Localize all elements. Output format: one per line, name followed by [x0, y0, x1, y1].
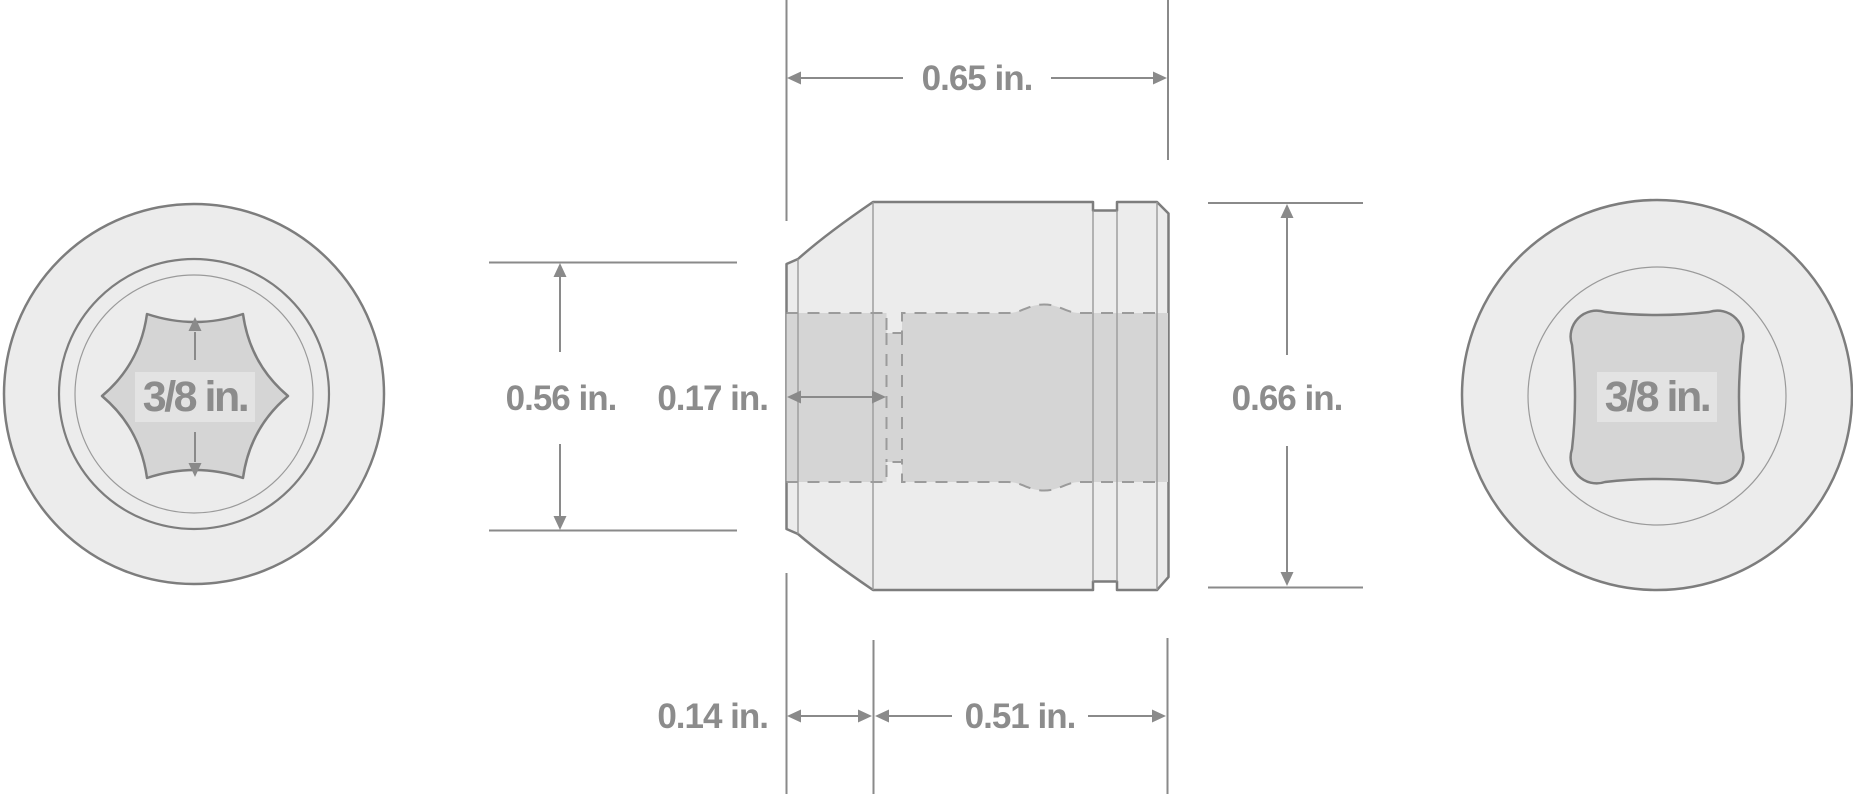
- dim-outer-diameter: 0.66 in.: [1208, 203, 1363, 588]
- front-opening-size-label: 3/8 in.: [143, 373, 247, 421]
- arrow-up-icon: [1281, 204, 1294, 218]
- arrow-up-icon: [554, 263, 567, 277]
- front-opening-diameter-label: 0.56 in.: [506, 379, 617, 418]
- dim-front-taper-length: 0.14 in.: [657, 573, 873, 794]
- drive-size-label: 3/8 in.: [1605, 373, 1709, 421]
- front-taper-length-label: 0.14 in.: [657, 697, 768, 736]
- arrow-down-icon: [1281, 572, 1294, 586]
- arrow-right-icon: [1152, 710, 1166, 723]
- arrow-left-icon: [787, 72, 801, 85]
- front-view: 3/8 in.: [4, 204, 384, 584]
- arrow-left-icon: [875, 710, 889, 723]
- drive-end-length-label: 0.51 in.: [965, 697, 1076, 736]
- opening-depth-label: 0.17 in.: [657, 379, 768, 418]
- arrow-down-icon: [554, 516, 567, 530]
- overall-length-label: 0.65 in.: [922, 59, 1033, 98]
- outer-diameter-label: 0.66 in.: [1232, 379, 1343, 418]
- diagram-canvas: 3/8 in. 0.65 in.: [0, 0, 1853, 794]
- back-view: 3/8 in.: [1462, 200, 1852, 590]
- arrow-left-icon: [787, 710, 801, 723]
- dim-drive-end-length: 0.51 in.: [875, 638, 1168, 794]
- socket-dimension-diagram: 3/8 in. 0.65 in.: [0, 0, 1853, 794]
- arrow-right-icon: [1153, 72, 1167, 85]
- arrow-right-icon: [858, 710, 872, 723]
- dim-overall-length: 0.65 in.: [787, 0, 1169, 221]
